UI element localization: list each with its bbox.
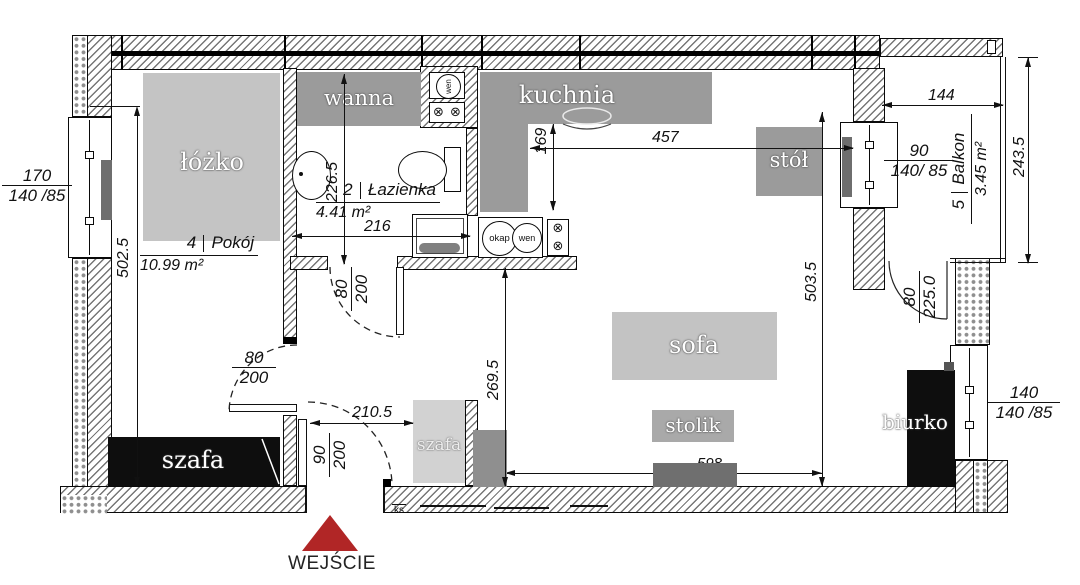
dim-arrow: [134, 477, 140, 487]
dim-arrow: [502, 477, 508, 487]
dim-line-269-5: [505, 268, 506, 486]
dim-tick: [90, 106, 140, 107]
window-left-dim: 170 140 /85: [2, 166, 72, 205]
dim-arrow: [550, 201, 556, 211]
room-label-bathroom: 2 Łazienka 4.41 m²: [316, 180, 440, 222]
divider: [951, 192, 968, 193]
dim-arrow: [502, 268, 508, 278]
threshold-mark: [570, 505, 608, 507]
dim-457: 457: [652, 129, 679, 147]
room-number: 4: [187, 233, 196, 253]
dim-arrow: [994, 102, 1004, 108]
window-width: 170: [2, 166, 72, 185]
room-label-bedroom: 4 Pokój 10.99 m²: [140, 233, 258, 275]
door-entrance-dim: 90 200: [310, 433, 350, 477]
dim-arrow: [134, 106, 140, 116]
dim-arrow: [341, 74, 347, 84]
window-right-dim: 140 140 /85: [988, 383, 1060, 422]
room-area: 4.41 m²: [316, 203, 440, 222]
dim-arrow: [292, 233, 302, 239]
dim-144: 144: [928, 87, 955, 105]
window-size: 140/ 85: [884, 161, 954, 180]
dim-line-457: [530, 148, 853, 149]
window-size: 140 /85: [988, 403, 1060, 422]
room-number: 2: [343, 180, 352, 200]
door-width: 80: [232, 348, 276, 367]
dim-arrow: [1025, 57, 1031, 67]
dim-arrow: [461, 233, 471, 239]
dim-line-144: [882, 105, 1003, 106]
dim-arrow: [341, 255, 347, 265]
window-width: 140: [988, 383, 1060, 402]
room-name: Balkon: [949, 133, 969, 185]
ks-label: ks: [392, 504, 406, 516]
dim-169: 169: [533, 111, 551, 171]
dim-269-5: 269.5: [485, 350, 503, 410]
dim-503-5: 503.5: [803, 252, 821, 312]
door-bedroom-dim: 80 200: [232, 348, 276, 387]
dim-502-5: 502.5: [115, 228, 133, 288]
entrance-arrow-icon: [302, 515, 358, 551]
wardrobe-rod-mark: [262, 439, 279, 484]
door-height: 200: [232, 368, 276, 387]
divider: [203, 235, 204, 252]
dim-arrow: [310, 420, 320, 426]
door-width: 80: [332, 267, 351, 311]
dim-arrow: [844, 145, 854, 151]
dim-tick: [1018, 57, 1038, 58]
dim-line-210-5: [310, 423, 413, 424]
door-bathroom-dim: 80 200: [332, 267, 372, 311]
room-area: 3.45 m²: [972, 114, 991, 224]
door-height: 225.0: [920, 271, 939, 323]
floor-plan: 598 łóżko wanna kuchnia stół sofa stolik…: [0, 0, 1080, 585]
window-balcony-dim: 90 140/ 85: [884, 141, 954, 180]
dim-line-169: [553, 124, 554, 210]
room-name: Łazienka: [368, 180, 436, 200]
door-balcony-dim: 80 225.0: [900, 271, 940, 323]
door-height: 200: [352, 267, 371, 311]
dim-210-5: 210.5: [352, 404, 392, 422]
divider: [360, 182, 361, 199]
dim-arrow: [882, 102, 892, 108]
room-number: 5: [949, 200, 969, 209]
dim-line-502-5: [137, 112, 138, 486]
room-area: 10.99 m²: [140, 256, 258, 275]
dim-arrow: [819, 112, 825, 122]
threshold-mark: [420, 505, 486, 507]
dim-line-216: [292, 236, 470, 237]
window-size: 140 /85: [2, 186, 72, 205]
room-label-balcony: 5 Balkon 3.45 m²: [949, 114, 995, 224]
door-height: 200: [330, 433, 349, 477]
entrance-label: WEJŚCIE: [287, 553, 377, 575]
threshold-mark: [494, 507, 549, 509]
door-width: 90: [310, 433, 329, 477]
room-name: Pokój: [211, 233, 254, 253]
kitchen-sink-icon: [563, 108, 611, 124]
dim-tick: [1018, 262, 1038, 263]
dim-arrow: [819, 477, 825, 487]
dim-line-503-5: [822, 112, 823, 486]
window-width: 90: [884, 141, 954, 160]
dim-243-5: 243.5: [1011, 127, 1029, 187]
dim-arrow: [404, 420, 414, 426]
door-width: 80: [900, 271, 919, 323]
